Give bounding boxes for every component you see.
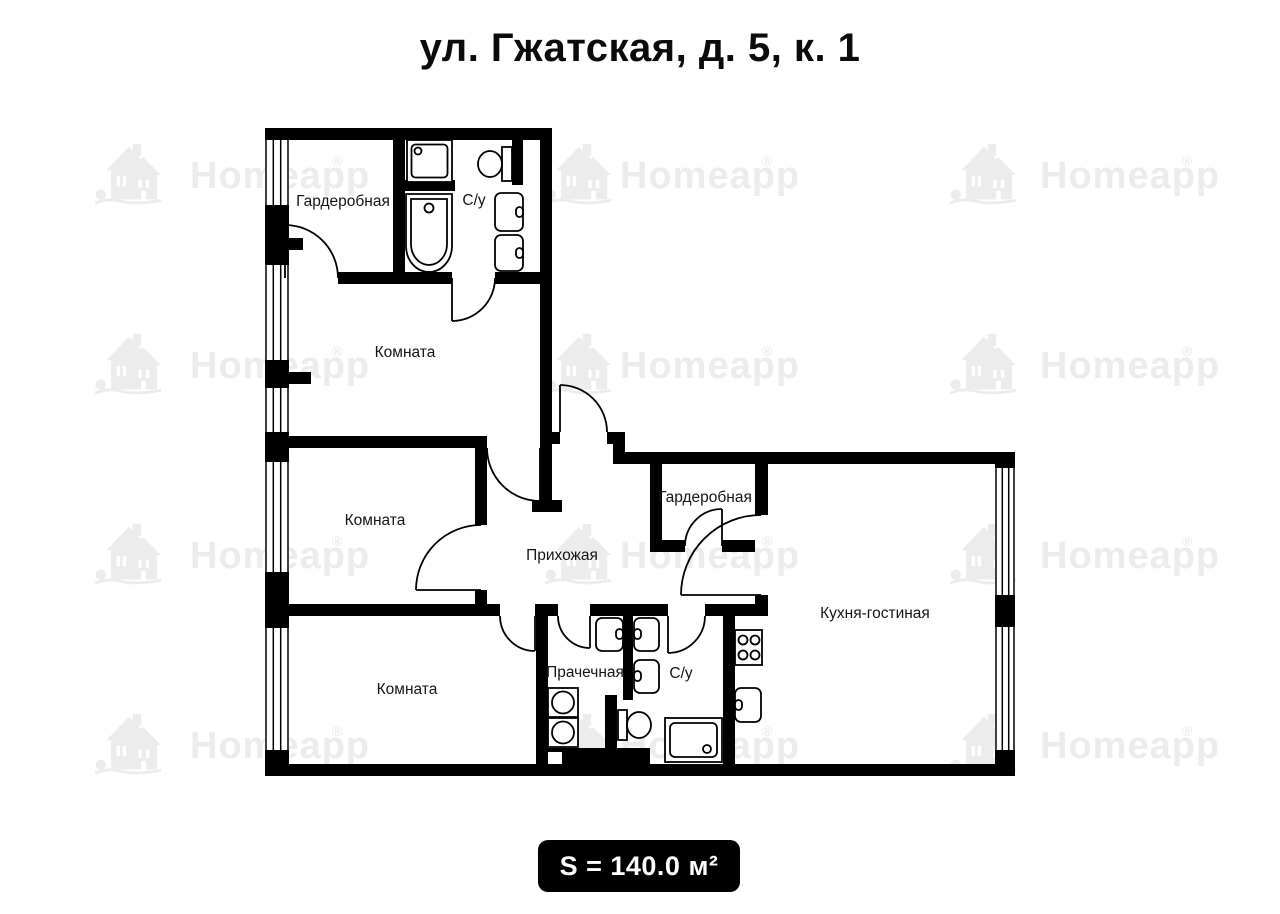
watermark-tile: Homeapp ®	[950, 524, 1220, 583]
sink-icon	[495, 193, 523, 231]
wall-wardrobe-right-left	[650, 464, 662, 552]
room-label-room-upper: Комната	[375, 344, 436, 361]
watermark-tile: Homeapp ®	[545, 334, 800, 393]
registered-mark: ®	[1182, 153, 1193, 169]
washing-machine-icon	[548, 688, 578, 717]
wall-room-middle-right	[475, 436, 487, 525]
door-bathroom-top	[452, 278, 495, 321]
homeapp-watermark-text: Homeapp	[1040, 535, 1220, 577]
homeapp-watermark-text: Homeapp	[620, 345, 800, 387]
wall-wardrobe-bathroom	[393, 140, 405, 272]
watermark-tile: Homeapp ®	[950, 334, 1220, 393]
watermark-tile: Homeapp ®	[950, 144, 1220, 203]
registered-mark: ®	[332, 343, 343, 359]
room-label-laundry: Прачечная	[546, 664, 624, 681]
watermark-tile: Homeapp ®	[95, 334, 370, 393]
wall-stub	[289, 238, 303, 250]
wall-bathroom-kitchen	[723, 604, 735, 776]
homeapp-house-icon	[545, 334, 611, 393]
door-room-upper	[487, 448, 540, 501]
registered-mark: ®	[332, 533, 343, 549]
window	[265, 388, 289, 432]
window	[265, 462, 289, 572]
registered-mark: ®	[762, 533, 773, 549]
homeapp-house-icon	[95, 524, 161, 583]
room-label-kitchen-living: Кухня-гостиная	[820, 605, 930, 622]
toilet-icon	[618, 710, 651, 740]
page-title: ул. Гжатская, д. 5, к. 1	[0, 26, 1280, 71]
wall-toilet-stub	[512, 140, 523, 185]
wall-upper-block-right	[540, 128, 552, 512]
window	[265, 628, 289, 750]
room-label-bathroom-bottom: С/у	[669, 665, 693, 682]
registered-mark: ®	[1182, 343, 1193, 359]
sink-icon	[596, 618, 623, 651]
wall-wardrobe-right-bottom	[650, 540, 685, 552]
washing-machine-icon	[548, 718, 578, 747]
homeapp-house-icon	[950, 144, 1016, 203]
toilet-icon	[478, 147, 512, 181]
room-label-room-bottom: Комната	[377, 681, 438, 698]
sink-icon	[735, 688, 761, 722]
homeapp-watermark-text: Homeapp	[1040, 725, 1220, 767]
registered-mark: ®	[762, 723, 773, 739]
wall-hallway-kitchen	[755, 464, 768, 515]
wall-room-divider-upper	[265, 436, 487, 448]
wall-hallway-kitchen	[755, 595, 768, 616]
room-label-hallway: Прихожая	[526, 547, 598, 564]
homeapp-watermark-text: Homeapp	[620, 535, 800, 577]
area-badge-text: S = 140.0 м²	[560, 851, 719, 882]
floorplan-drawing: Homeapp ® Homeapp ® Homeapp ® Homeapp ®	[0, 0, 1280, 914]
door-wardrobe-top	[285, 225, 338, 278]
sink-icon	[495, 235, 523, 271]
window	[265, 265, 289, 360]
homeapp-watermark-text: Homeapp	[1040, 345, 1220, 387]
watermark-tile: Homeapp ®	[545, 144, 800, 203]
door-room-middle	[416, 525, 481, 590]
homeapp-watermark-text: Homeapp	[620, 155, 800, 197]
watermark-tile: Homeapp ®	[95, 524, 370, 583]
homeapp-house-icon	[95, 714, 161, 773]
area-badge: S = 140.0 м²	[538, 840, 740, 892]
sink-icon	[634, 618, 659, 651]
wall-entrance-jog	[613, 432, 625, 464]
floorplan-page: ул. Гжатская, д. 5, к. 1	[0, 0, 1280, 914]
room-label-bathroom-top: С/у	[462, 192, 486, 209]
door-laundry	[558, 616, 590, 648]
registered-mark: ®	[762, 153, 773, 169]
bathtub-icon	[406, 194, 452, 272]
homeapp-house-icon	[95, 334, 161, 393]
room-label-room-middle: Комната	[345, 512, 406, 529]
wall-top	[265, 128, 552, 140]
wall-pilaster	[289, 372, 311, 384]
window	[995, 468, 1015, 595]
homeapp-watermark-text: Homeapp	[1040, 155, 1220, 197]
wall-wardrobe-right-bottom	[722, 540, 755, 552]
registered-mark: ®	[1182, 533, 1193, 549]
homeapp-house-icon	[95, 144, 161, 203]
wall-bathroom-bottom	[495, 272, 540, 284]
door-bathroom-bottom	[668, 616, 705, 653]
wall-kitchen-top	[625, 452, 1015, 464]
registered-mark: ®	[332, 723, 343, 739]
shower-icon	[665, 718, 722, 762]
registered-mark: ®	[1182, 723, 1193, 739]
wall-wardrobe-bottom	[338, 272, 452, 284]
wall-bottom	[265, 764, 1015, 776]
homeapp-house-icon	[545, 144, 611, 203]
stove-icon	[735, 630, 762, 665]
wall-laundry-bathroom	[623, 604, 633, 700]
wall-niche	[548, 752, 562, 764]
window	[265, 140, 289, 205]
registered-mark: ®	[762, 343, 773, 359]
sink-icon	[634, 660, 659, 693]
window	[995, 627, 1015, 750]
homeapp-house-icon	[950, 334, 1016, 393]
door-room-bottom	[500, 616, 535, 651]
room-label-wardrobe-right: Гардеробная	[658, 489, 752, 506]
wall-hallway-south	[265, 604, 500, 616]
shower-icon	[407, 140, 452, 182]
room-label-wardrobe-top: Гардеробная	[296, 193, 390, 210]
wall-entrance	[552, 432, 560, 444]
registered-mark: ®	[332, 153, 343, 169]
